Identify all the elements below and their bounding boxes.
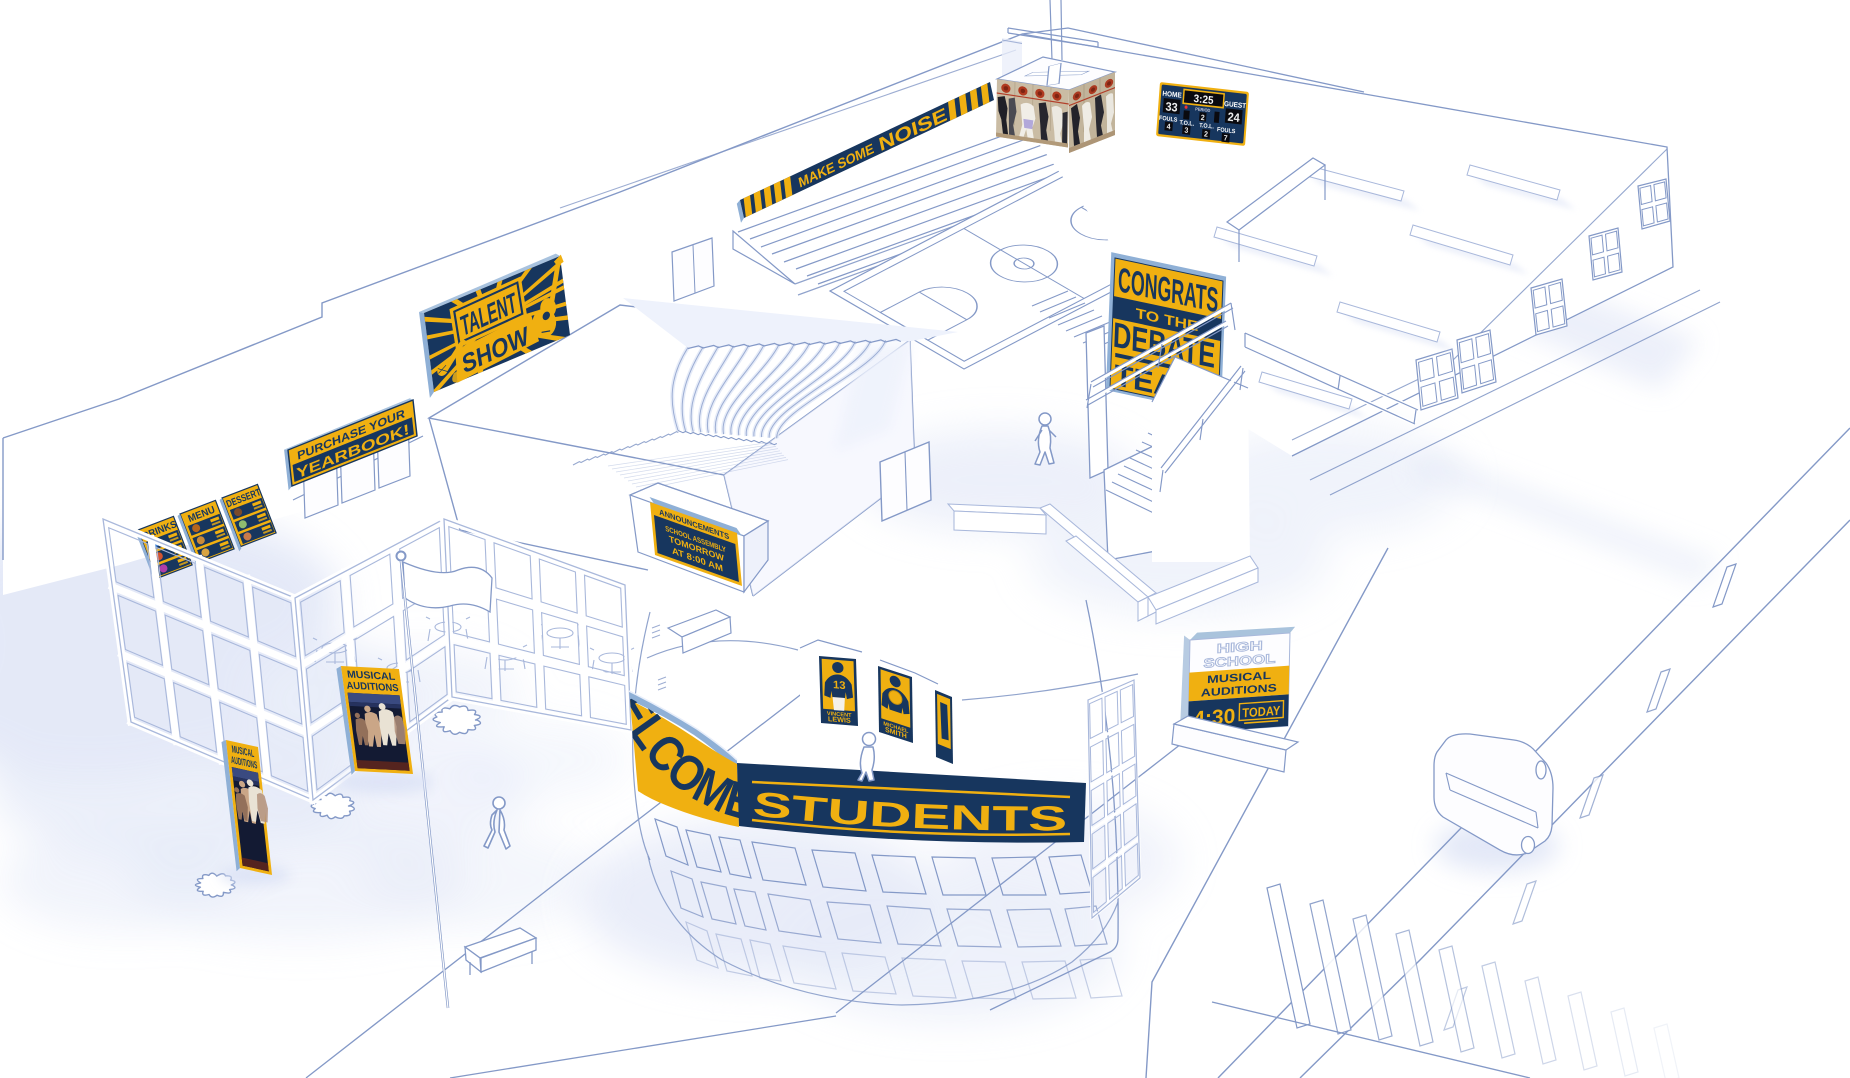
svg-text:3:25: 3:25 [1193,92,1214,107]
svg-text:7: 7 [1223,133,1228,143]
svg-text:2: 2 [1200,113,1205,123]
svg-text:2: 2 [1204,129,1209,139]
svg-text:3: 3 [1184,125,1189,135]
svg-text:TODAY: TODAY [1242,703,1281,721]
svg-text:24: 24 [1227,111,1241,125]
svg-text:13: 13 [833,679,846,692]
svg-text:33: 33 [1165,101,1178,115]
